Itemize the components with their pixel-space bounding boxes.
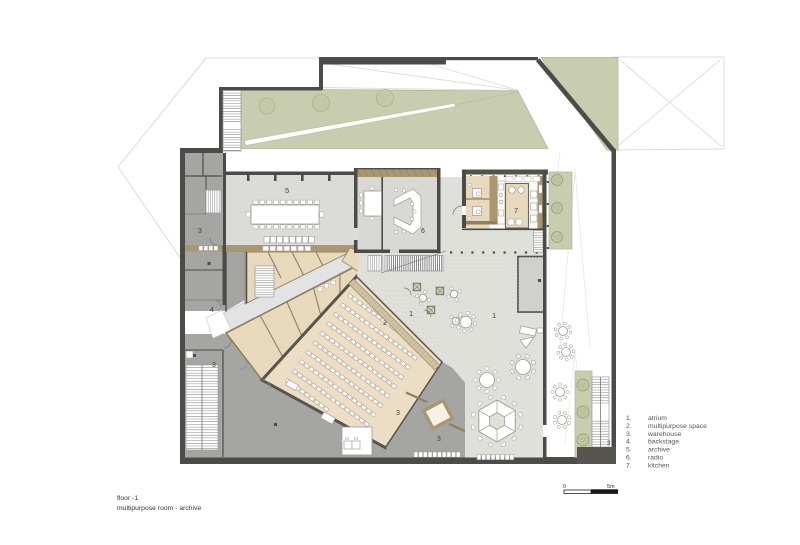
svg-text:7.: 7. [626,462,632,469]
svg-text:5m: 5m [607,484,615,490]
svg-text:kitchen: kitchen [648,462,670,469]
svg-text:archive: archive [648,447,670,454]
svg-text:3: 3 [198,228,202,235]
svg-text:4.: 4. [626,439,632,446]
svg-text:2.: 2. [626,423,632,430]
svg-text:multipurpose room - archive: multipurpose room - archive [117,505,201,512]
svg-text:3: 3 [437,436,441,443]
svg-text:1.: 1. [626,415,632,422]
svg-text:atrium: atrium [648,415,667,422]
svg-text:radio: radio [648,455,663,462]
svg-text:backstage: backstage [648,439,679,446]
svg-text:1: 1 [409,309,413,318]
svg-text:5.: 5. [626,447,632,454]
svg-text:0: 0 [563,484,566,490]
svg-text:warehouse: warehouse [647,431,681,438]
svg-text:6.: 6. [626,455,632,462]
svg-text:3.: 3. [626,431,632,438]
svg-text:4: 4 [210,307,214,314]
svg-text:5: 5 [285,186,289,195]
svg-text:floor -1: floor -1 [117,495,138,502]
svg-text:multipurpose space: multipurpose space [648,423,707,430]
svg-text:1: 1 [492,311,496,320]
svg-text:7: 7 [514,206,518,215]
svg-text:6: 6 [421,228,425,235]
svg-text:3: 3 [212,362,216,369]
svg-text:3: 3 [396,410,400,417]
